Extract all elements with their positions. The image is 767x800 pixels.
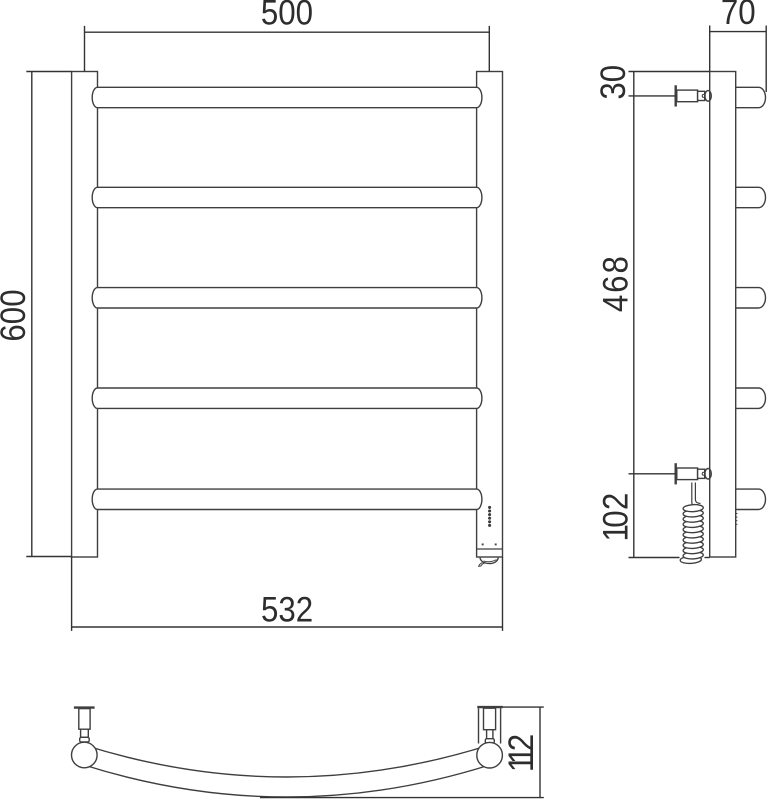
svg-text:532: 532 — [261, 591, 313, 630]
svg-text:600: 600 — [0, 289, 34, 341]
svg-text:30: 30 — [594, 65, 633, 100]
svg-text:500: 500 — [261, 0, 313, 33]
svg-text:70: 70 — [721, 0, 756, 33]
svg-text:2: 2 — [597, 493, 636, 510]
svg-text:2: 2 — [502, 734, 541, 751]
svg-text:0: 0 — [597, 510, 636, 527]
svg-text:468: 468 — [597, 254, 636, 312]
